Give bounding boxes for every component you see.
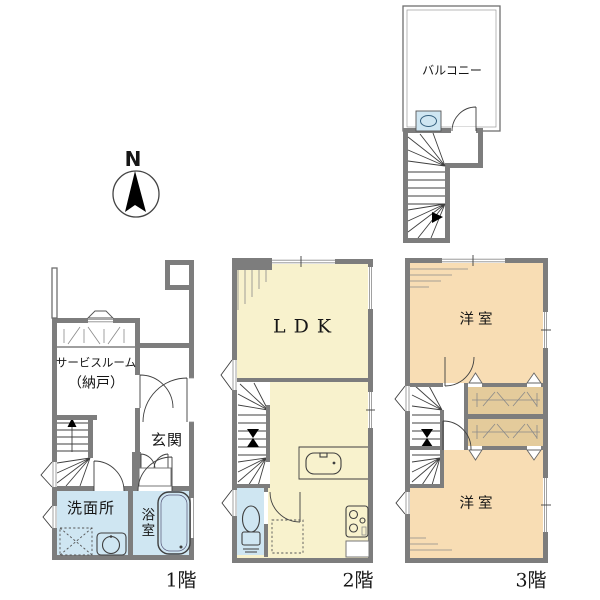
exterior-fence-wall	[52, 268, 57, 318]
awning-window-icon	[221, 360, 232, 390]
floor3-label: 3階	[515, 571, 546, 592]
awning-window-icon	[395, 386, 405, 411]
balcony-door-gap	[451, 127, 476, 134]
compass	[113, 171, 159, 217]
balcony-label: バルコニー	[422, 64, 482, 77]
service-room-label: サービスルーム	[56, 357, 136, 370]
bathtub	[158, 492, 190, 554]
awning-window-icon	[396, 492, 405, 514]
roof-stair-floor	[408, 133, 478, 238]
awning-window-icon	[43, 506, 52, 528]
floor1-plan	[41, 260, 194, 560]
bedroom-top-label: 洋室	[456, 313, 497, 329]
closet-bottom-floor	[468, 419, 543, 446]
roof-plan	[403, 6, 500, 243]
bedroom-bottom-floor-left	[410, 488, 444, 558]
kitchen-back-step	[346, 541, 369, 557]
floor1-label: 1階	[165, 571, 196, 592]
floor2-plan	[221, 256, 375, 563]
bedroom-bottom-label: 洋室	[456, 497, 497, 513]
balcony-sink	[416, 111, 441, 131]
ldk-label: LDK	[265, 317, 339, 338]
entrance-step	[139, 468, 171, 486]
service-room-sublabel: （納戸）	[68, 376, 124, 391]
entrance-label: 玄関	[151, 432, 183, 449]
service-room-window	[88, 311, 113, 323]
overhead-band	[232, 258, 272, 270]
closet-top-floor	[468, 387, 543, 414]
floorplan-page: N バルコニー サービスルーム （納戸） 玄関 洗面所 浴室 1階 LDK 2階…	[0, 0, 600, 600]
bathroom-label: 浴室	[139, 508, 154, 539]
floor2-label: 2階	[342, 571, 373, 592]
floor3-plan	[395, 255, 551, 563]
awning-window-icon	[222, 490, 232, 516]
compass-north-label: N	[125, 148, 142, 170]
awning-window-icon	[41, 462, 52, 487]
washroom-label: 洗面所	[67, 500, 115, 517]
